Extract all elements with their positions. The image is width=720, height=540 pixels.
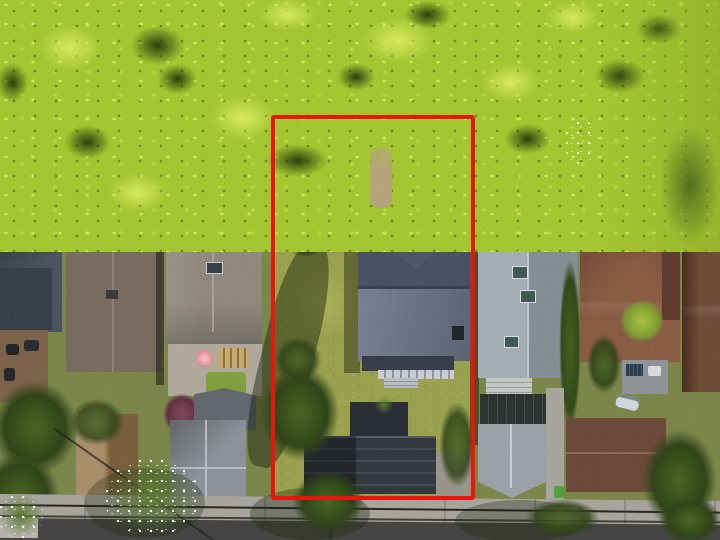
property-boundary-rectangle [271, 115, 475, 500]
bright-bush-cluster [616, 296, 668, 346]
canopy-light-patch [468, 55, 553, 110]
white-blossom-tree-large-flowers [104, 458, 200, 536]
deck-furniture [24, 340, 39, 351]
canopy-light-patch [95, 165, 180, 220]
solar-panel [626, 364, 643, 376]
deck-object [648, 366, 661, 376]
gray-garage-ridge [510, 424, 512, 488]
backyard-greens [582, 326, 626, 402]
canopy-light-patch [25, 15, 115, 80]
skylight [504, 336, 519, 348]
white-blossom-upper-right [564, 120, 598, 164]
deck-furniture [6, 344, 19, 355]
gray-gable-garage [478, 424, 546, 498]
skylight [520, 290, 536, 303]
chimney [106, 290, 118, 299]
house-a-lower-roof [0, 268, 52, 330]
skylight [512, 266, 528, 279]
skylight [206, 262, 223, 274]
canopy-light-patch [345, 8, 450, 73]
canopy-light-patch [245, 0, 330, 37]
pergola [218, 348, 248, 368]
street-tree [515, 494, 610, 540]
far-right-dark-trees [655, 115, 720, 255]
white-car [615, 393, 640, 411]
aerial-photo [0, 0, 720, 540]
pink-patio-umbrella [196, 350, 213, 367]
canopy-dark-patch [55, 118, 120, 166]
white-blossom-tree-small-flowers [0, 494, 44, 538]
canopy-light-patch [535, 0, 610, 40]
greenhouse-roof [480, 394, 546, 424]
canopy-dark-patch [495, 118, 560, 160]
